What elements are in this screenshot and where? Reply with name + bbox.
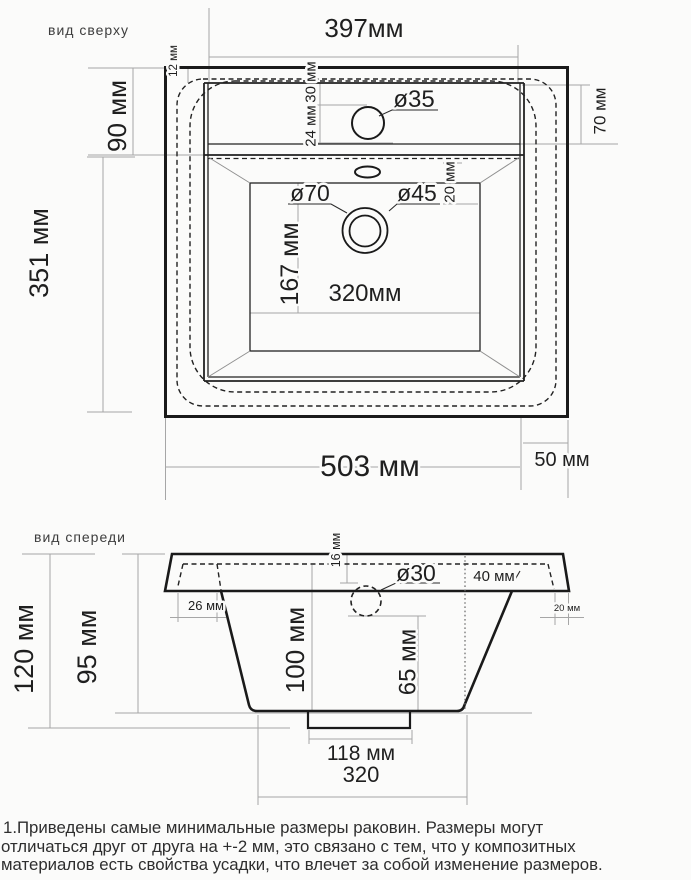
dim-label-24: 24 мм	[303, 105, 320, 146]
dim-label-351: 351 мм	[24, 208, 54, 298]
dashed-contour-inner	[190, 81, 536, 392]
dim-label-20-right: 20 мм	[554, 603, 580, 614]
sink-outline-top	[166, 68, 568, 417]
dashed-contour-outer	[177, 79, 556, 406]
dim-label-320-bottom: 320	[343, 762, 380, 787]
top-view-title: вид сверху	[48, 22, 129, 38]
dim-label-d30: ø30	[396, 560, 436, 586]
drawing-svg: вид сверху 397мм 90 мм 351 мм 12 мм 30 м…	[0, 0, 691, 880]
bowl-outline-front	[221, 591, 512, 711]
dim-label-70: 70 мм	[591, 87, 610, 134]
dim-label-20-top: 20 мм	[442, 161, 459, 202]
dim-label-120: 120 мм	[9, 604, 39, 694]
footnote-line-3: материалов есть свойства усадки, что вле…	[1, 855, 603, 874]
footnote-line-2: отличаться друг от друга на +-2 мм, это …	[1, 837, 576, 856]
dim-label-167: 167 мм	[276, 222, 304, 305]
faucet-deck	[204, 83, 524, 381]
dim-label-16: 16 мм	[329, 533, 343, 568]
dim-label-12: 12 мм	[168, 45, 180, 77]
dim-label-50: 50 мм	[534, 449, 589, 471]
overflow-slot	[355, 167, 380, 178]
dim-label-503: 503 мм	[320, 450, 420, 483]
dim-label-95: 95 мм	[72, 610, 102, 685]
dim-label-40: 40 мм	[473, 568, 514, 585]
dim-label-65: 65 мм	[395, 629, 422, 695]
dim-label-30: 30 мм	[303, 61, 320, 102]
dim-label-26: 26 мм	[188, 598, 224, 613]
basin-slope-edges	[208, 157, 520, 377]
dim-label-d45: ø45	[397, 180, 437, 206]
faucet-hole-top	[352, 107, 384, 139]
sink-technical-drawing: вид сверху 397мм 90 мм 351 мм 12 мм 30 м…	[0, 0, 691, 880]
dim-label-d70: ø70	[290, 180, 330, 206]
dim-label-100: 100 мм	[280, 607, 310, 693]
dim-label-397: 397мм	[324, 13, 403, 43]
drain-hole-circle	[350, 216, 381, 247]
dim-label-90: 90 мм	[102, 80, 132, 152]
top-view: вид сверху 397мм 90 мм 351 мм 12 мм 30 м…	[24, 8, 618, 500]
footnote-line-1: 1.Приведены самые минимальные размеры ра…	[3, 818, 543, 837]
footnote: 1.Приведены самые минимальные размеры ра…	[1, 818, 603, 874]
dim-label-320-basin: 320мм	[328, 280, 401, 307]
front-view: вид спереди 120 мм 95 мм 26 мм 16 мм ø30…	[9, 529, 584, 805]
drain-flange	[308, 711, 410, 728]
front-view-title: вид спереди	[34, 529, 126, 545]
dim-label-d35: ø35	[393, 86, 434, 113]
